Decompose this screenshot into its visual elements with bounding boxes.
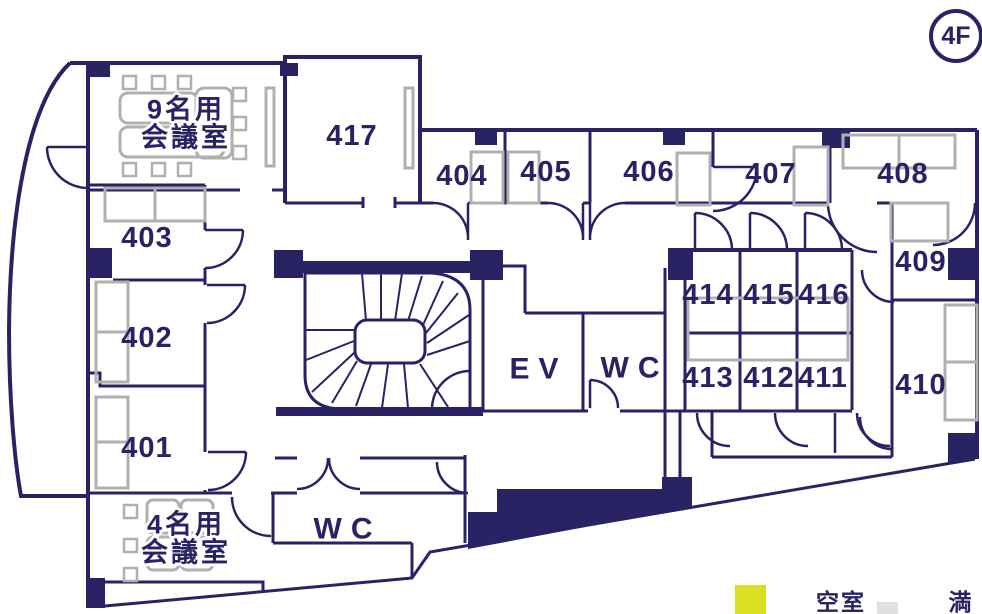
room-label-410: 410 <box>895 370 946 400</box>
whiteboard <box>405 88 413 168</box>
door-arcs <box>47 147 975 536</box>
wc-center-label: WC <box>592 352 669 384</box>
room-label-415: 415 <box>743 280 794 310</box>
room-label-412: 412 <box>743 363 794 393</box>
staircase <box>305 273 470 409</box>
meeting-room-4-line2: 会議室 <box>141 539 231 567</box>
meeting-room-4-label: 4名用 会議室 <box>141 511 231 568</box>
room-label-416: 416 <box>798 280 849 310</box>
room-label-413: 413 <box>682 363 733 393</box>
meeting-room-9-line1: 9名用 <box>141 96 231 124</box>
vacant-label: 空室 <box>816 583 866 614</box>
room-label-417: 417 <box>326 121 377 151</box>
room-label-409: 409 <box>895 247 946 277</box>
room-label-407: 407 <box>745 159 796 189</box>
occupied-label: 満室 <box>948 583 982 614</box>
room-label-408: 408 <box>877 159 928 189</box>
room-label-406: 406 <box>623 157 674 187</box>
meeting-room-9-line2: 会議室 <box>141 124 231 152</box>
legend-occupied: 満室 <box>877 583 982 614</box>
stair-steps <box>305 273 470 408</box>
meeting-room-9-label: 9名用 会議室 <box>141 96 231 153</box>
room-label-403: 403 <box>121 223 172 253</box>
room-label-411: 411 <box>798 363 848 393</box>
room-label-414: 414 <box>682 280 733 310</box>
room-label-401: 401 <box>121 433 172 463</box>
room-label-404: 404 <box>436 161 487 191</box>
meeting-room-4-line1: 4名用 <box>141 511 231 539</box>
whiteboard <box>266 88 274 166</box>
occupied-swatch <box>877 602 898 614</box>
floor-plan-4f: 417 404 405 406 407 408 403 402 401 409 … <box>0 0 982 614</box>
chairs <box>124 505 137 581</box>
legend-vacant: 空室 <box>735 583 866 614</box>
floor-badge: 4F <box>929 9 982 63</box>
room-label-402: 402 <box>121 323 172 353</box>
vacant-swatch <box>735 585 766 614</box>
elevator-label: EV <box>500 353 567 385</box>
wc-bottom-label: WC <box>305 513 382 545</box>
room-label-405: 405 <box>520 157 571 187</box>
